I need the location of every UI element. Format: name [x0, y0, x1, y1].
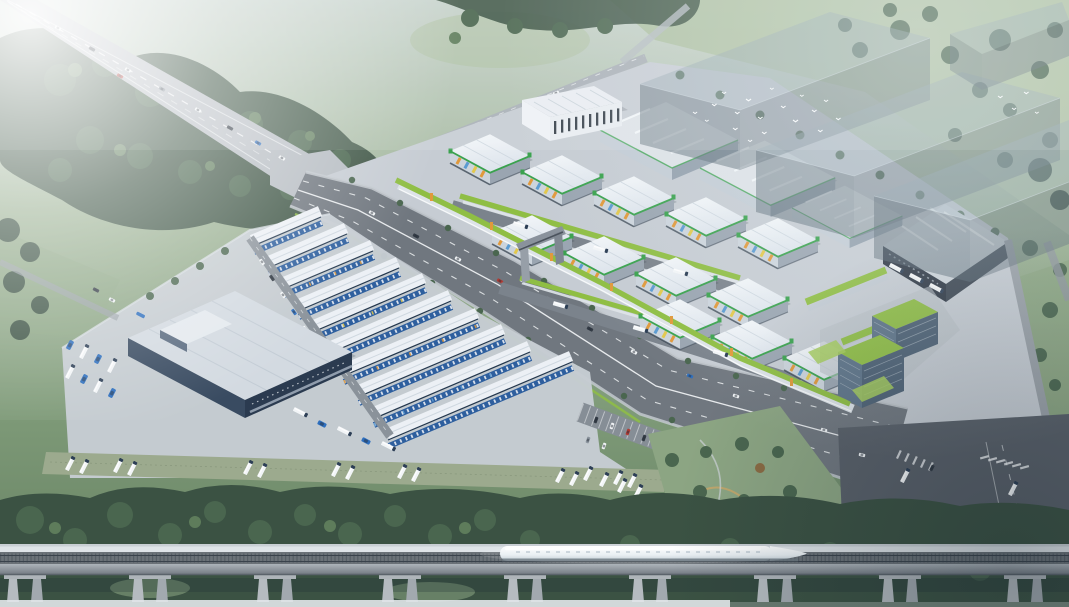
atmosphere-overlays: [0, 0, 1069, 607]
aerial-render-image: Aerial bird's-eye architectural renderin…: [0, 0, 1069, 607]
bottom-light-strip: [0, 600, 730, 607]
scene-canvas: Aerial bird's-eye architectural renderin…: [0, 0, 1069, 607]
